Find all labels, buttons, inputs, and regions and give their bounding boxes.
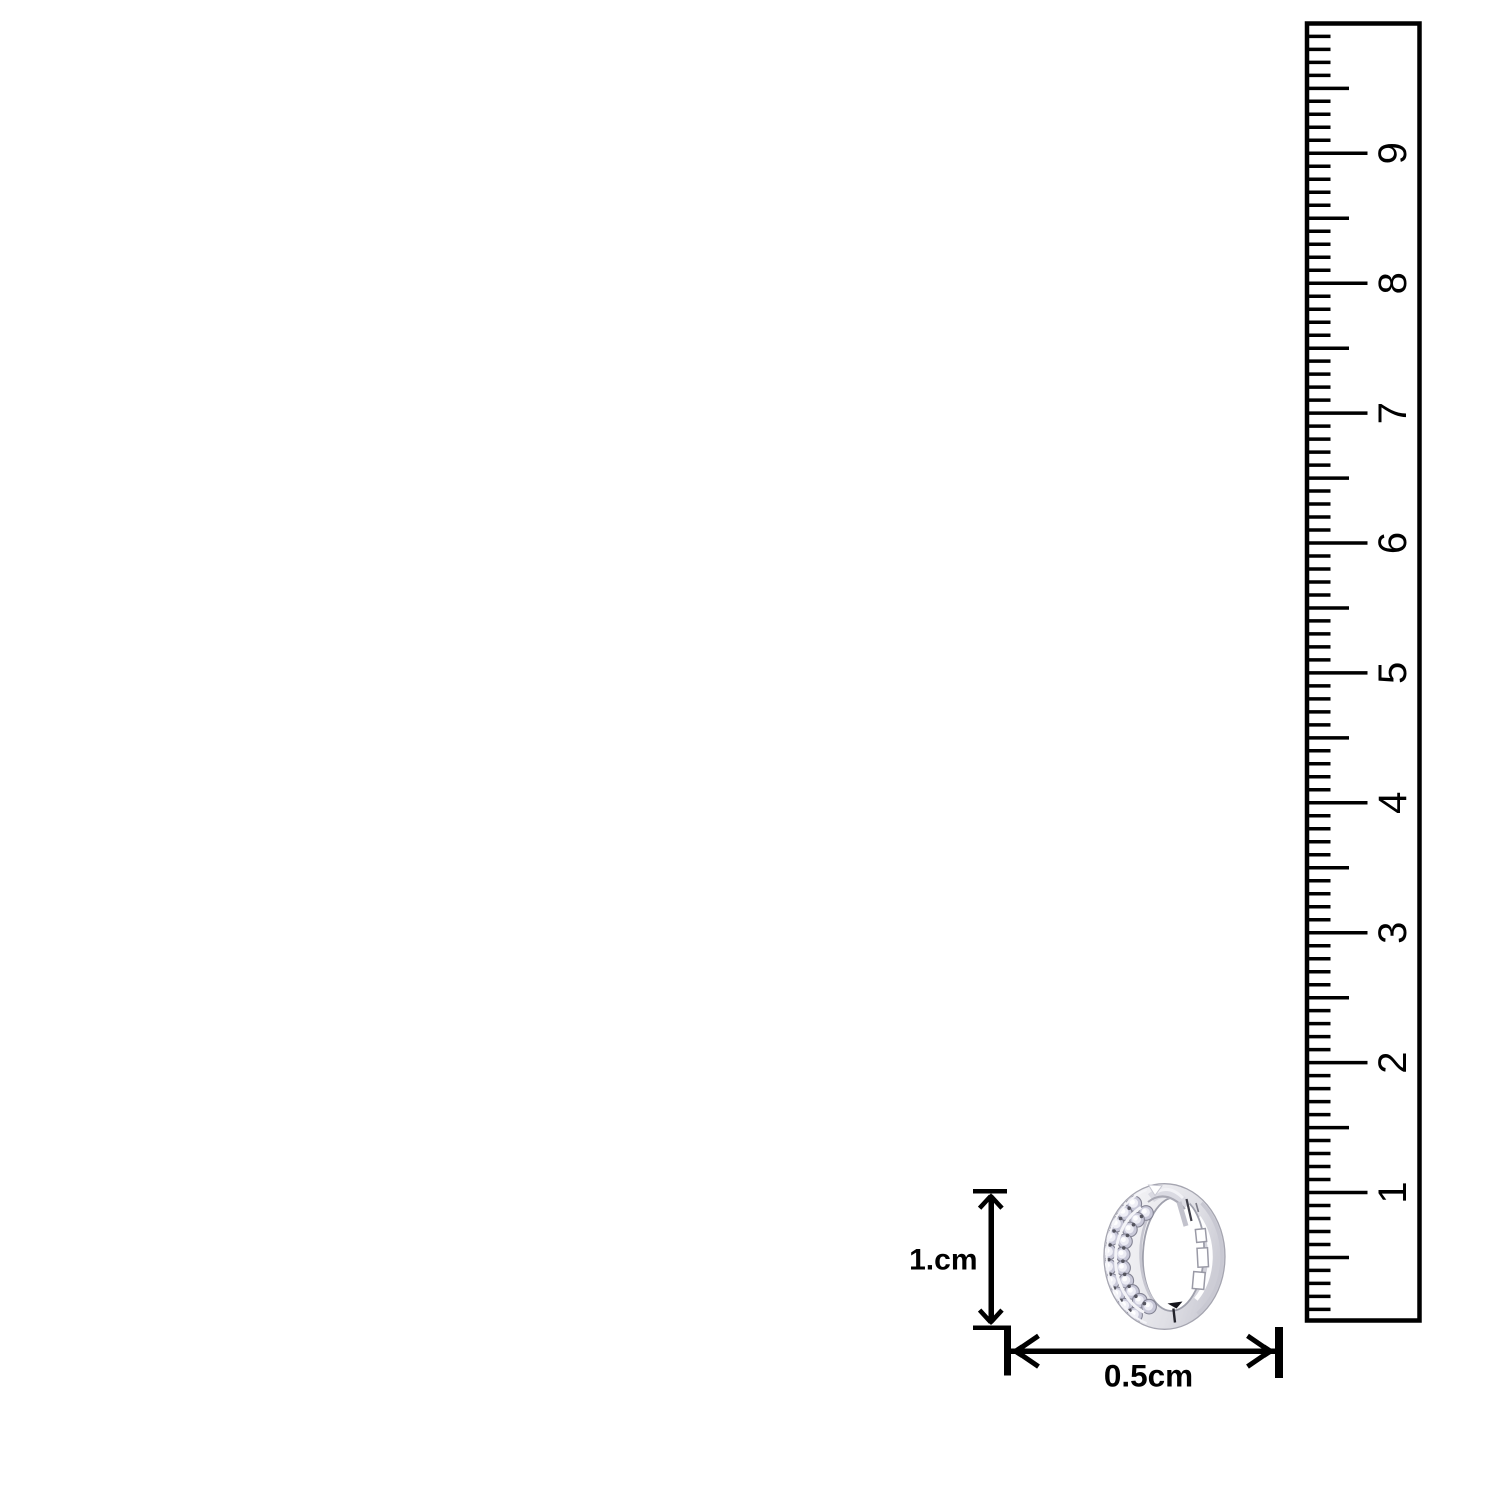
svg-text:8: 8 xyxy=(1371,272,1415,294)
svg-text:2: 2 xyxy=(1371,1051,1415,1073)
svg-text:9: 9 xyxy=(1371,142,1415,164)
svg-text:3: 3 xyxy=(1371,922,1415,944)
svg-text:0.5cm: 0.5cm xyxy=(1104,1358,1193,1394)
svg-text:4: 4 xyxy=(1371,792,1415,814)
svg-text:6: 6 xyxy=(1371,532,1415,554)
svg-text:7: 7 xyxy=(1371,402,1415,424)
svg-text:5: 5 xyxy=(1371,662,1415,684)
svg-text:1.cm: 1.cm xyxy=(909,1243,977,1276)
svg-text:1: 1 xyxy=(1371,1181,1415,1203)
